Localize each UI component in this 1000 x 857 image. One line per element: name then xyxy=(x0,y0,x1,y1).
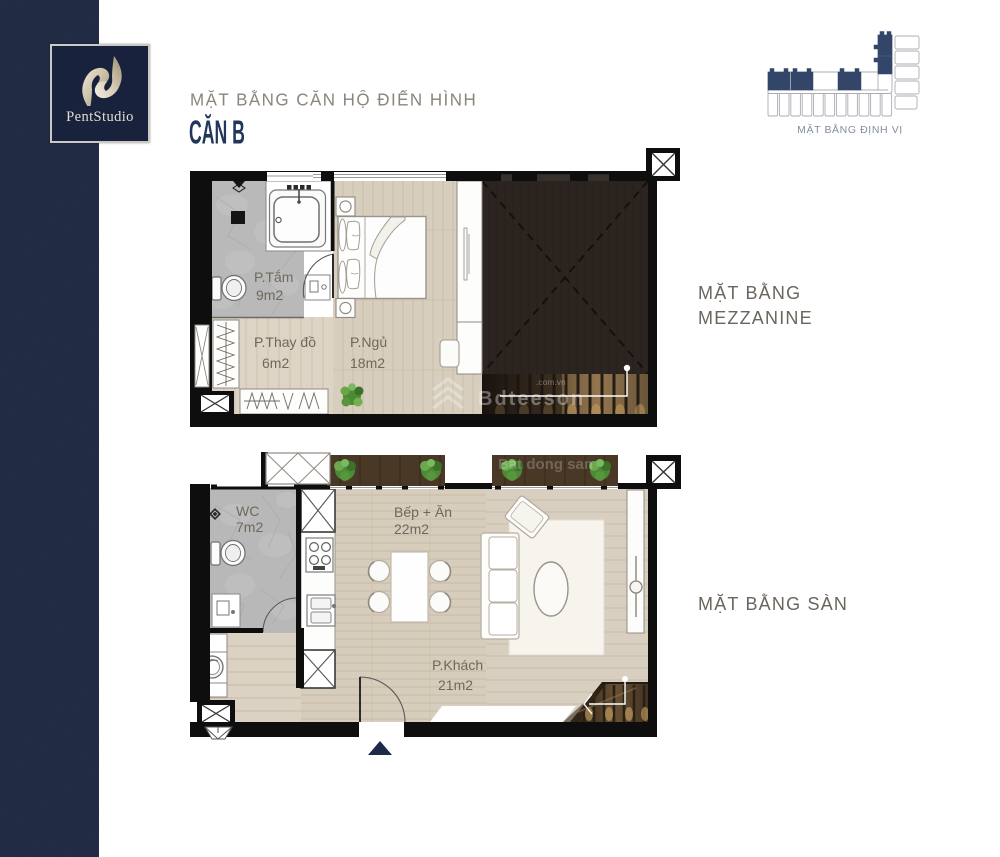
svg-text:Bdteeson: Bdteeson xyxy=(478,388,585,410)
svg-text:7m2: 7m2 xyxy=(236,519,263,535)
svg-text:Bat dong san: Bat dong san xyxy=(498,456,593,473)
svg-text:22m2: 22m2 xyxy=(394,521,429,537)
svg-text:P.Tắm: P.Tắm xyxy=(254,269,293,285)
svg-text:P.Ngủ: P.Ngủ xyxy=(350,334,387,350)
svg-text:Bếp + Ăn: Bếp + Ăn xyxy=(394,504,452,520)
svg-text:6m2: 6m2 xyxy=(262,355,289,371)
svg-text:.com.vn: .com.vn xyxy=(536,377,566,387)
svg-text:9m2: 9m2 xyxy=(256,287,283,303)
svg-text:18m2: 18m2 xyxy=(350,355,385,371)
svg-text:P.Thay đồ: P.Thay đồ xyxy=(254,334,316,350)
svg-text:21m2: 21m2 xyxy=(438,677,473,693)
svg-text:P.Khách: P.Khách xyxy=(432,657,483,673)
svg-text:ome: ome xyxy=(598,441,622,455)
svg-text:WC: WC xyxy=(236,503,259,519)
